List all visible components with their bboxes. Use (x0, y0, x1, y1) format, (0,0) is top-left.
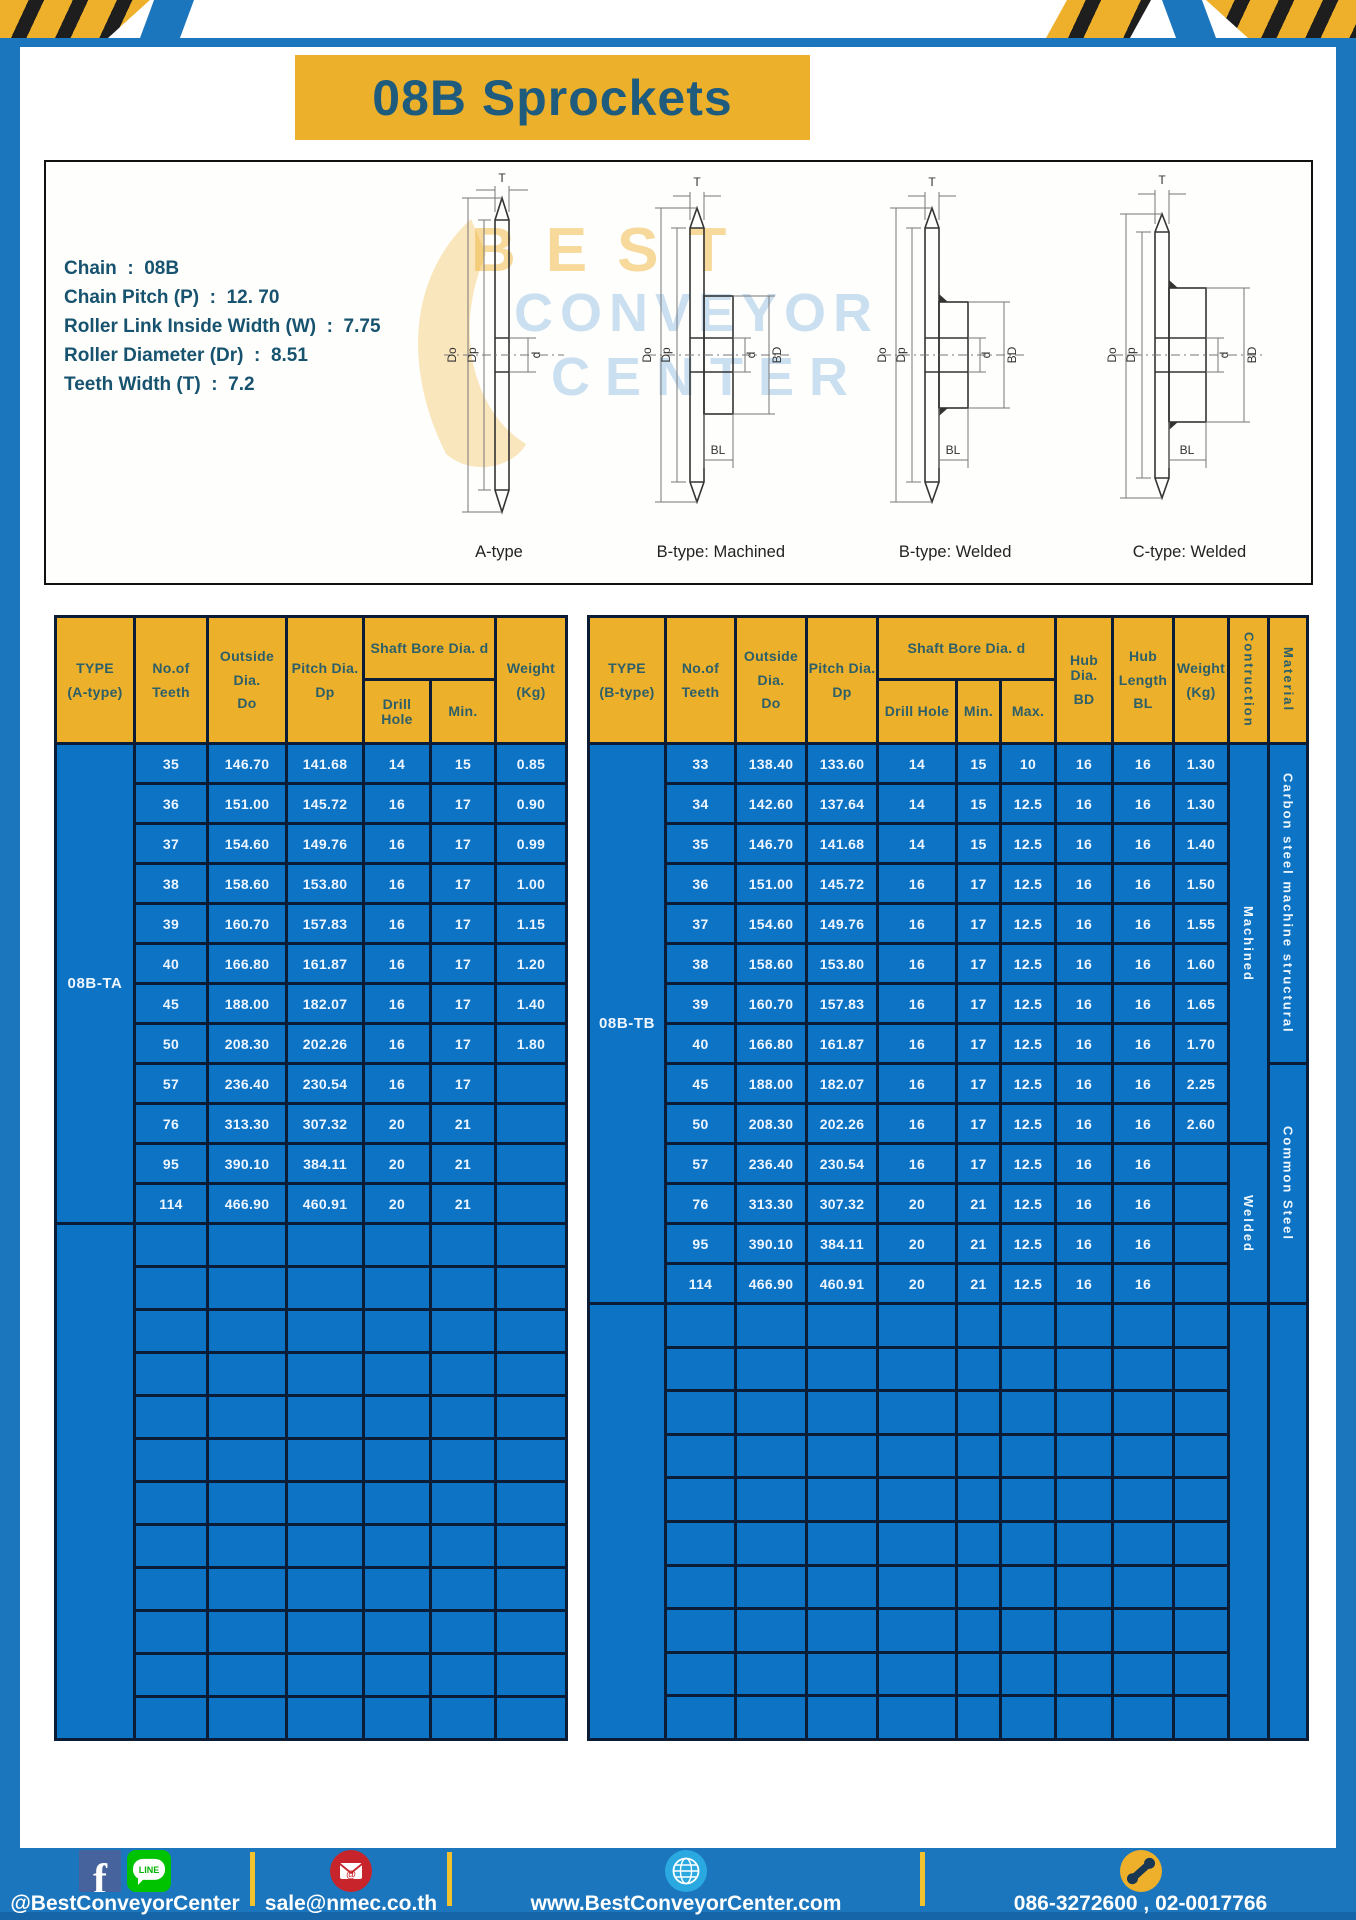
cell-hub-length: 16 (1114, 825, 1172, 862)
empty-cell (497, 1268, 565, 1308)
cell-pitch-dia: 149.76 (288, 825, 362, 862)
empty-cell (497, 1225, 565, 1265)
empty-cell (1057, 1479, 1111, 1520)
empty-cell (1002, 1392, 1054, 1433)
cell-max: 10 (1002, 745, 1054, 782)
empty-cell (288, 1612, 362, 1652)
empty-cell (136, 1526, 206, 1566)
empty-cell (808, 1305, 876, 1346)
cell-drill-hole: 20 (365, 1185, 429, 1222)
empty-cell (209, 1569, 285, 1609)
header-hub-length: Hub Length BL (1114, 618, 1172, 742)
construction-welded: Welded (1230, 1145, 1267, 1302)
cell-hub-dia: 16 (1057, 1065, 1111, 1102)
cell-weight: 1.40 (1175, 825, 1227, 862)
header-type: TYPE (A-type) (57, 618, 133, 742)
cell-pitch-dia: 149.76 (808, 905, 876, 942)
empty-cell (667, 1436, 734, 1477)
cell-outside-dia: 154.60 (737, 905, 805, 942)
col-outside-dia: Outside Dia. Do 146.70151.00154.60158.60… (209, 618, 285, 1738)
cell-pitch-dia: 153.80 (808, 945, 876, 982)
cell-teeth: 36 (667, 865, 734, 902)
cell-drill-hole: 14 (879, 745, 955, 782)
header-text: Do (237, 696, 256, 711)
cell-weight: 1.80 (497, 1025, 565, 1062)
empty-cell (209, 1354, 285, 1394)
footer-phone-numbers: 086-3272600 , 02-0017766 (1014, 1893, 1267, 1914)
empty-rows (136, 1225, 206, 1738)
cell-hub-length: 16 (1114, 1025, 1172, 1062)
cell-teeth: 39 (136, 905, 206, 942)
svg-text:@: @ (346, 1870, 356, 1881)
empty-cell (365, 1354, 429, 1394)
hazard-stripes-right-inner (1046, 0, 1151, 38)
title-banner: 08B Sprockets (295, 55, 810, 140)
cell-teeth: 35 (667, 825, 734, 862)
cell-teeth: 38 (667, 945, 734, 982)
empty-cell (288, 1569, 362, 1609)
chain-specs: Chain08B Chain Pitch (P)12. 70 Roller Li… (64, 258, 381, 396)
footer-website-section: www.BestConveyorCenter.com (452, 1848, 920, 1920)
empty-cell (288, 1397, 362, 1437)
empty-cell (1002, 1697, 1054, 1738)
header-weight: Weight (Kg) (1175, 618, 1227, 742)
cell-pitch-dia: 145.72 (288, 785, 362, 822)
empty-cell (288, 1311, 362, 1351)
cell-weight: 2.60 (1175, 1105, 1227, 1142)
cell-pitch-dia: 161.87 (288, 945, 362, 982)
col-weight: Weight (Kg) 0.850.900.991.001.151.201.40… (497, 618, 565, 1738)
cell-drill-hole: 14 (365, 745, 429, 782)
empty-cell (737, 1392, 805, 1433)
header-text: (Kg) (1186, 685, 1215, 700)
phone-icon (1119, 1849, 1163, 1893)
teeth-values: 3536373839404550577695114 (136, 745, 206, 1222)
top-decoration-bar (0, 0, 1356, 47)
spec-label: Roller Diameter (Dr) (64, 345, 244, 366)
cell-teeth: 40 (667, 1025, 734, 1062)
cell-hub-dia: 16 (1057, 905, 1111, 942)
empty-rows (365, 1225, 429, 1738)
col-group-shaft-bore: Shaft Bore Dia. d Drill Hole 14161616161… (365, 618, 494, 1738)
empty-cell (209, 1311, 285, 1351)
cell-drill-hole: 14 (879, 785, 955, 822)
cell-drill-hole: 16 (879, 1145, 955, 1182)
col-max: Max. 1012.512.512.512.512.512.512.512.51… (1002, 681, 1054, 1738)
cell-hub-dia: 16 (1057, 745, 1111, 782)
cell-drill-hole: 16 (365, 825, 429, 862)
empty-cell (1002, 1305, 1054, 1346)
drawing-b-type-welded: T Do Dp d BD BL B-type: Welded (868, 168, 1043, 581)
page-title: 08B Sprockets (372, 69, 732, 127)
cell-weight: 0.99 (497, 825, 565, 862)
spec-label: Teeth Width (T) (64, 374, 201, 395)
cell-weight: 1.55 (1175, 905, 1227, 942)
cell-weight (1175, 1225, 1227, 1262)
empty-cell (1057, 1567, 1111, 1608)
cell-hub-length: 16 (1114, 745, 1172, 782)
empty-cell (432, 1526, 494, 1566)
top-blue-line (0, 38, 1356, 47)
cell-drill-hole: 16 (879, 1025, 955, 1062)
empty-cell (136, 1698, 206, 1738)
col-drill-hole: Drill Hole 1414141616161616161616202020 (879, 681, 955, 1738)
empty-cell (497, 1354, 565, 1394)
header-text: Dp (315, 685, 334, 700)
cell-hub-dia: 16 (1057, 825, 1111, 862)
cell-pitch-dia: 157.83 (808, 985, 876, 1022)
table-b-08b-tb: TYPE (B-type) 08B-TB No.of Teeth 3334353… (587, 615, 1309, 1741)
empty-cell (288, 1483, 362, 1523)
cell-teeth: 35 (136, 745, 206, 782)
dim-label-t: T (928, 175, 936, 189)
hub-length-values: 1616161616161616161616161616 (1114, 745, 1172, 1302)
dim-label-bl: BL (945, 443, 960, 457)
header-text: BL (1133, 696, 1152, 711)
empty-cell (1175, 1436, 1227, 1477)
header-min: Min. (432, 681, 494, 742)
cell-weight (497, 1105, 565, 1142)
dim-label-do: Do (445, 347, 459, 363)
cell-weight (497, 1185, 565, 1222)
empty-cell (1002, 1436, 1054, 1477)
drawing-caption: A-type (475, 543, 523, 562)
cell-min: 21 (958, 1265, 999, 1302)
cell-min: 17 (958, 1105, 999, 1142)
header-type: TYPE (B-type) (590, 618, 664, 742)
cell-hub-length: 16 (1114, 1185, 1172, 1222)
cell-pitch-dia: 141.68 (808, 825, 876, 862)
cell-teeth: 50 (136, 1025, 206, 1062)
empty-rows (1114, 1305, 1172, 1738)
col-pitch-dia: Pitch Dia. Dp 141.68145.72149.76153.8015… (288, 618, 362, 1738)
page: 08B Sprockets BEST CONVEYOR CENTER Chain… (20, 47, 1336, 1848)
cell-outside-dia: 138.40 (737, 745, 805, 782)
col-hub-dia: Hub Dia. BD 1616161616161616161616161616 (1057, 618, 1111, 1738)
cell-pitch-dia: 182.07 (808, 1065, 876, 1102)
dim-label-bd: BD (1245, 346, 1259, 363)
cell-weight: 1.70 (1175, 1025, 1227, 1062)
col-construction: Contruction Machined Welded (1230, 618, 1267, 1738)
empty-cell (497, 1698, 565, 1738)
cell-min: 21 (432, 1185, 494, 1222)
header-text: Teeth (152, 685, 190, 700)
spec-value: 8.51 (244, 345, 308, 366)
empty-cell (432, 1354, 494, 1394)
cell-outside-dia: 236.40 (737, 1145, 805, 1182)
empty-cell (1002, 1567, 1054, 1608)
type-value: 08B-TB (590, 745, 664, 1302)
empty-cell (737, 1523, 805, 1564)
empty-cell (497, 1483, 565, 1523)
empty-cell (737, 1610, 805, 1651)
empty-cell (1114, 1392, 1172, 1433)
material-common-steel: Common Steel (1270, 1065, 1306, 1302)
cell-pitch-dia: 307.32 (808, 1185, 876, 1222)
spec-label: Chain Pitch (P) (64, 287, 199, 308)
outside-dia-values: 138.40142.60146.70151.00154.60158.60160.… (737, 745, 805, 1302)
empty-cell (432, 1612, 494, 1652)
empty-cell (879, 1436, 955, 1477)
empty-cell (737, 1654, 805, 1695)
cell-drill-hole: 20 (365, 1105, 429, 1142)
cell-hub-length: 16 (1114, 1065, 1172, 1102)
cell-outside-dia: 208.30 (737, 1105, 805, 1142)
empty-cell (365, 1483, 429, 1523)
cell-teeth: 57 (136, 1065, 206, 1102)
empty-cell (365, 1225, 429, 1265)
dim-label-t: T (498, 171, 506, 185)
empty-cell (958, 1479, 999, 1520)
header-teeth: No.of Teeth (667, 618, 734, 742)
cell-weight: 1.15 (497, 905, 565, 942)
empty-cell (365, 1655, 429, 1695)
b-machined-drawing: T Do Dp d BD BL (633, 168, 808, 543)
hazard-stripes-right (1206, 0, 1356, 38)
a-type-drawing: T Do Dp d (424, 168, 574, 543)
empty-cell (365, 1612, 429, 1652)
cell-weight (497, 1145, 565, 1182)
cell-weight: 2.25 (1175, 1065, 1227, 1102)
empty-cell (1114, 1610, 1172, 1651)
empty-cell (288, 1655, 362, 1695)
empty-cell (209, 1526, 285, 1566)
empty-cell (209, 1440, 285, 1480)
line-bubble (133, 1859, 165, 1880)
cell-drill-hole: 20 (365, 1145, 429, 1182)
cell-weight: 0.85 (497, 745, 565, 782)
cell-drill-hole: 16 (879, 865, 955, 902)
cell-outside-dia: 188.00 (209, 985, 285, 1022)
footer-social-section: @BestConveyorCenter (0, 1848, 250, 1920)
cell-hub-dia: 16 (1057, 1185, 1111, 1222)
empty-cell (365, 1440, 429, 1480)
empty-cell (288, 1440, 362, 1480)
empty-cell (209, 1225, 285, 1265)
drill-hole-values: 1414141616161616161616202020 (879, 745, 955, 1302)
empty-cell (136, 1569, 206, 1609)
empty-cell (1114, 1567, 1172, 1608)
blue-wedge-left (140, 0, 194, 38)
cell-drill-hole: 16 (879, 1105, 955, 1142)
empty-cell (1114, 1654, 1172, 1695)
empty-cell (365, 1569, 429, 1609)
empty-cell (879, 1610, 955, 1651)
header-text: Pitch Dia. (809, 661, 876, 676)
drawing-caption: B-type: Welded (899, 543, 1012, 562)
spec-line: Teeth Width (T)7.2 (64, 374, 381, 396)
cell-outside-dia: 158.60 (209, 865, 285, 902)
header-outside-dia: Outside Dia. Do (209, 618, 285, 742)
empty-cell (136, 1440, 206, 1480)
sprocket-drawings: T Do Dp d A-type (396, 168, 1305, 581)
drawing-c-type-welded: T Do Dp d BD BL C-type: Welded (1102, 168, 1277, 581)
cell-max: 12.5 (1002, 1065, 1054, 1102)
cell-outside-dia: 158.60 (737, 945, 805, 982)
footer-email: sale@nmec.co.th (265, 1893, 437, 1914)
cell-pitch-dia: 157.83 (288, 905, 362, 942)
cell-min: 17 (432, 905, 494, 942)
cell-pitch-dia: 460.91 (288, 1185, 362, 1222)
cell-teeth: 34 (667, 785, 734, 822)
cell-pitch-dia: 141.68 (288, 745, 362, 782)
cell-drill-hole: 14 (879, 825, 955, 862)
spec-label: Chain (64, 258, 117, 279)
cell-min: 17 (432, 825, 494, 862)
empty-cell (365, 1698, 429, 1738)
cell-hub-dia: 16 (1057, 1025, 1111, 1062)
weight-values: 1.301.301.401.501.551.601.651.702.252.60 (1175, 745, 1227, 1302)
empty-cell (497, 1569, 565, 1609)
cell-min: 17 (958, 985, 999, 1022)
hub-dia-values: 1616161616161616161616161616 (1057, 745, 1111, 1302)
empty-cell (737, 1349, 805, 1390)
cell-drill-hole: 20 (879, 1185, 955, 1222)
col-teeth: No.of Teeth 3536373839404550577695114 (136, 618, 206, 1738)
empty-cell (879, 1523, 955, 1564)
cell-hub-dia: 16 (1057, 985, 1111, 1022)
empty-cell (1002, 1349, 1054, 1390)
empty-cell (1057, 1697, 1111, 1738)
cell-pitch-dia: 384.11 (288, 1145, 362, 1182)
cell-hub-length: 16 (1114, 985, 1172, 1022)
dim-label-do: Do (640, 347, 654, 363)
cell-weight: 1.40 (497, 985, 565, 1022)
col-group-shaft-bore: Shaft Bore Dia. d Drill Hole 14141416161… (879, 618, 1054, 1738)
cell-hub-length: 16 (1114, 785, 1172, 822)
diagram-box: BEST CONVEYOR CENTER Chain08B Chain Pitc… (44, 160, 1313, 585)
cell-max: 12.5 (1002, 1265, 1054, 1302)
cell-pitch-dia: 384.11 (808, 1225, 876, 1262)
cell-outside-dia: 466.90 (209, 1185, 285, 1222)
outside-dia-values: 146.70151.00154.60158.60160.70166.80188.… (209, 745, 285, 1222)
empty-cell (1002, 1523, 1054, 1564)
hazard-stripes-left (0, 0, 150, 38)
header-text: (Kg) (516, 685, 545, 700)
cell-max: 12.5 (1002, 1225, 1054, 1262)
header-text: Hub Dia. (1057, 653, 1111, 682)
empty-cell (958, 1610, 999, 1651)
empty-rows (288, 1225, 362, 1738)
teeth-values: 33343536373839404550577695114 (667, 745, 734, 1302)
empty-cell (432, 1311, 494, 1351)
empty-construction-cell (1230, 1305, 1267, 1738)
cell-teeth: 76 (136, 1105, 206, 1142)
empty-cell (288, 1354, 362, 1394)
header-text: TYPE (608, 661, 646, 676)
spec-label: Roller Link Inside Width (W) (64, 316, 316, 337)
empty-cell (209, 1698, 285, 1738)
cell-weight: 1.60 (1175, 945, 1227, 982)
empty-cell (432, 1225, 494, 1265)
cell-max: 12.5 (1002, 905, 1054, 942)
empty-cell (1057, 1436, 1111, 1477)
empty-cell (1002, 1610, 1054, 1651)
dim-label-d: d (979, 352, 993, 359)
empty-cell (209, 1483, 285, 1523)
cell-weight: 1.30 (1175, 785, 1227, 822)
empty-cell (432, 1698, 494, 1738)
empty-rows (432, 1225, 494, 1738)
header-text: Pitch Dia. (292, 661, 359, 676)
cell-hub-dia: 16 (1057, 945, 1111, 982)
cell-weight (1175, 1265, 1227, 1302)
empty-cell (1057, 1305, 1111, 1346)
cell-drill-hole: 16 (365, 985, 429, 1022)
cell-teeth: 45 (136, 985, 206, 1022)
header-text: Outside (220, 649, 274, 664)
cell-min: 17 (958, 945, 999, 982)
cell-hub-length: 16 (1114, 945, 1172, 982)
col-type: TYPE (B-type) 08B-TB (590, 618, 664, 1738)
cell-teeth: 114 (136, 1185, 206, 1222)
c-welded-drawing: T Do Dp d BD BL (1102, 168, 1277, 543)
empty-cell (667, 1567, 734, 1608)
spec-tables: TYPE (A-type) 08B-TA No.of Teeth 3536373… (54, 615, 1336, 1741)
cell-pitch-dia: 161.87 (808, 1025, 876, 1062)
empty-cell (432, 1483, 494, 1523)
cell-teeth: 36 (136, 785, 206, 822)
empty-material-cell (1270, 1305, 1306, 1738)
empty-cell (432, 1440, 494, 1480)
cell-hub-dia: 16 (1057, 785, 1111, 822)
col-min: Min. 151717171717171717212121 (432, 681, 494, 1738)
empty-cell (1175, 1567, 1227, 1608)
header-min: Min. (958, 681, 999, 742)
cell-teeth: 33 (667, 745, 734, 782)
footer-social-handle: @BestConveyorCenter (10, 1893, 239, 1914)
cell-teeth: 76 (667, 1185, 734, 1222)
empty-cell (808, 1610, 876, 1651)
empty-cell (808, 1697, 876, 1738)
empty-cell (958, 1654, 999, 1695)
cell-weight (1175, 1145, 1227, 1182)
cell-weight: 1.65 (1175, 985, 1227, 1022)
spec-value: 7.2 (201, 374, 255, 395)
col-weight: Weight (Kg) 1.301.301.401.501.551.601.65… (1175, 618, 1227, 1738)
empty-cell (136, 1268, 206, 1308)
cell-outside-dia: 188.00 (737, 1065, 805, 1102)
dim-label-bl: BL (1180, 443, 1195, 457)
header-pitch-dia: Pitch Dia. Dp (808, 618, 876, 742)
empty-cell (958, 1392, 999, 1433)
empty-rows (737, 1305, 805, 1738)
empty-cell (879, 1567, 955, 1608)
cell-weight: 0.90 (497, 785, 565, 822)
empty-cell (667, 1697, 734, 1738)
footer-phone-section: 086-3272600 , 02-0017766 (925, 1848, 1356, 1920)
cell-teeth: 114 (667, 1265, 734, 1302)
empty-cell (136, 1483, 206, 1523)
type-value: 08B-TA (57, 745, 133, 1222)
empty-cell (808, 1567, 876, 1608)
empty-cell (365, 1526, 429, 1566)
cell-drill-hole: 16 (879, 945, 955, 982)
cell-min: 17 (432, 865, 494, 902)
header-text: (B-type) (599, 685, 654, 700)
empty-cell (365, 1311, 429, 1351)
empty-cell (737, 1697, 805, 1738)
footer-website: www.BestConveyorCenter.com (531, 1893, 842, 1914)
header-material: Material (1270, 618, 1306, 742)
cell-weight (1175, 1185, 1227, 1222)
cell-teeth: 57 (667, 1145, 734, 1182)
footer-email-section: @ sale@nmec.co.th (255, 1848, 447, 1920)
empty-cell (209, 1612, 285, 1652)
empty-cell (667, 1479, 734, 1520)
cell-drill-hole: 16 (365, 945, 429, 982)
empty-cell (1057, 1610, 1111, 1651)
